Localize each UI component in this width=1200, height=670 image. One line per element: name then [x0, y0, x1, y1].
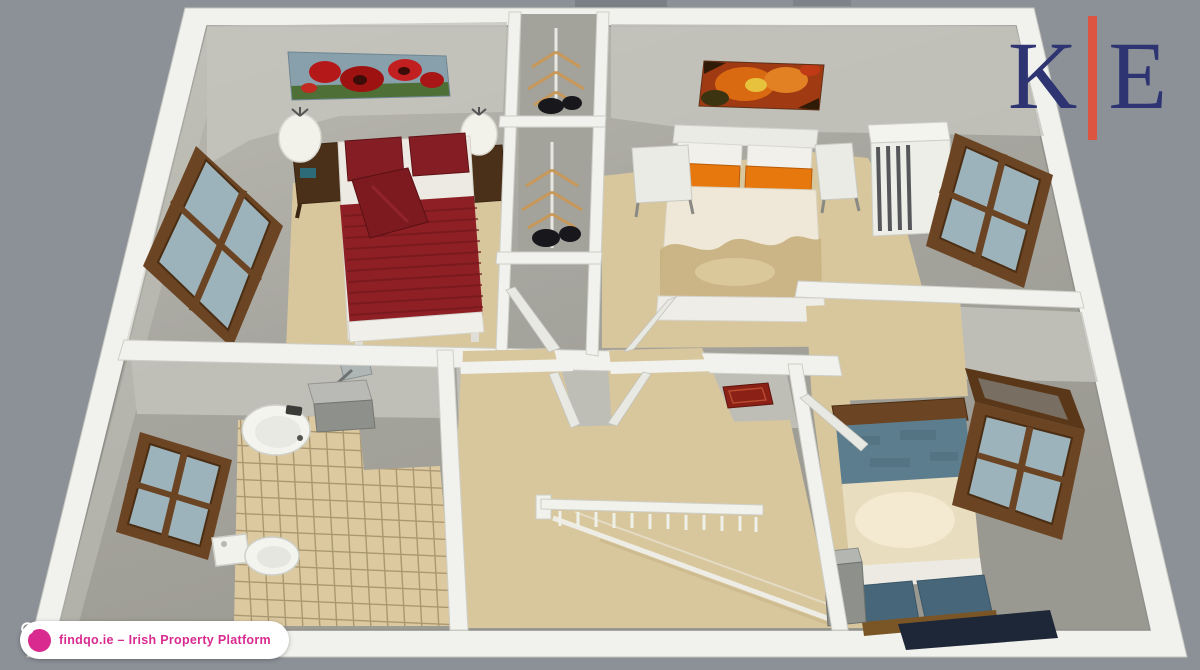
footboard: [656, 296, 826, 322]
globe-icon: [28, 629, 51, 652]
closet-shelf-2: [496, 252, 602, 264]
closet-shelf-1: [499, 116, 606, 127]
landing-carpet: [452, 420, 836, 628]
findqo-badge: findqo.ie – Irish Property Platform: [20, 621, 289, 659]
logo-divider-bar: [1088, 16, 1097, 140]
bedroom-3-carpet: [806, 300, 968, 402]
bed-red: [338, 133, 484, 352]
sink: [242, 405, 310, 455]
logo-letter-k: K: [1008, 28, 1077, 124]
red-rug: [723, 383, 773, 408]
closet: [518, 14, 597, 252]
agent-logo: K E: [1008, 16, 1167, 140]
logo-letter-e: E: [1108, 28, 1167, 124]
findqo-badge-text: findqo.ie – Irish Property Platform: [59, 633, 271, 647]
property-floorplan-image: K E findqo.ie – Irish Property Platform: [0, 0, 1200, 670]
